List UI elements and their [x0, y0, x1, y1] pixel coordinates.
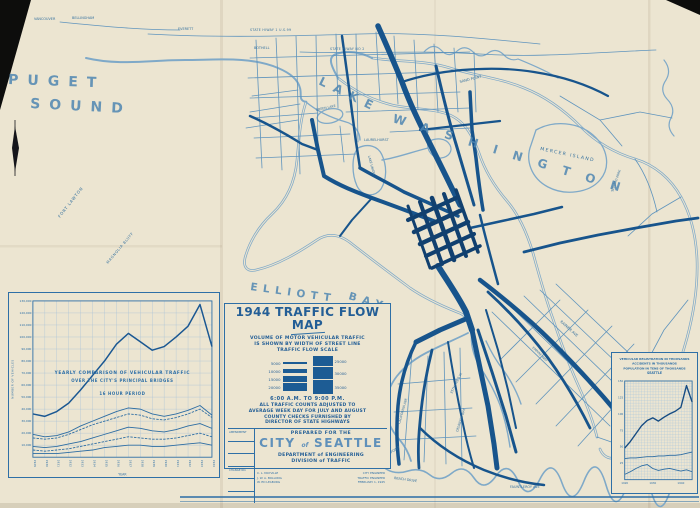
- scale-heading: TRAFFIC FLOW SCALE: [228, 348, 387, 354]
- series-line-6: [33, 443, 212, 454]
- amendment-table: AMENDMENT CHANGE NO.: [228, 429, 255, 503]
- traffic-flow-scale: 5000 10000 15000 20000 25000 30000 35000: [228, 356, 387, 394]
- label-puget: PUGET: [8, 72, 106, 91]
- scale-right-column: 25000 30000 35000: [313, 356, 353, 394]
- y-tick-label: 125: [618, 395, 623, 399]
- y-tick-label: 80,000: [21, 359, 31, 363]
- scale-bar: [283, 383, 307, 392]
- scale-bar: [283, 369, 307, 374]
- note-line-4: DIRECTOR OF STATE HIGHWAYS: [228, 420, 387, 426]
- scale-bar: [283, 376, 307, 383]
- series-registration: [625, 386, 692, 448]
- title-block-lower: AMENDMENT CHANGE NO. PREPARED FOR THE CI…: [228, 428, 387, 503]
- y-tick-label: 100: [618, 412, 623, 416]
- y-tick-label: 110,000: [20, 323, 32, 327]
- y-tick-label: 150: [618, 379, 623, 383]
- plot-border: [625, 381, 692, 480]
- y-tick-label: 70,000: [21, 371, 31, 375]
- bridge-traffic-chart-svg: 10,00020,00030,00040,00050,00060,00070,0…: [9, 293, 219, 477]
- label-fauntleroy-ave: FAUNTLEROY AVE: [510, 485, 540, 489]
- label-bellingham: BELLINGHAM: [72, 16, 94, 20]
- scale-label: 30000: [335, 371, 353, 376]
- x-tick-label: 1930: [649, 481, 656, 485]
- x-tick-label: 1940: [164, 460, 168, 467]
- label-state-hiway-1: STATE HIWAY 1 U.S.99: [250, 28, 291, 32]
- x-tick-label: 1935: [104, 460, 108, 467]
- y-tick-label: 10,000: [21, 443, 31, 447]
- of-word: of: [301, 442, 308, 449]
- x-tick-label: 1920: [621, 481, 628, 485]
- seattle-word: SEATTLE: [314, 436, 383, 450]
- y-tick-label: 100,000: [20, 335, 32, 339]
- y-tick-label: 120,000: [20, 311, 32, 315]
- x-tick-label: 1930: [45, 460, 49, 467]
- registration-chart-svg: 255075100125150192019301940VEHICULAR REG…: [612, 353, 697, 493]
- signature-names: C. L. MAYVILLE J. W. A. BOLLONG W. ED LE…: [255, 471, 321, 484]
- label-vancouver: VANCOUVER: [34, 17, 56, 21]
- prepared-for-section: PREPARED FOR THE CITY of SEATTLE DEPARTM…: [255, 429, 387, 503]
- city-word: CITY: [259, 436, 296, 450]
- scale-label: 35000: [335, 385, 353, 390]
- x-tick-label: 1941: [176, 460, 180, 467]
- chart-title-line: ACCIDENTS IN THOUSANDS: [632, 362, 677, 366]
- scale-block: [313, 367, 333, 379]
- scale-label: 15000: [263, 377, 281, 382]
- x-tick-label: 1932: [69, 460, 73, 467]
- x-tick-label: 1934: [93, 460, 97, 467]
- chart-note: 16 HOUR PERIOD: [99, 391, 145, 396]
- bridge-traffic-chart: 10,00020,00030,00040,00050,00060,00070,0…: [8, 292, 220, 478]
- label-bothell: BOTHELL: [254, 46, 270, 50]
- label-laurelhurst: LAURELHURST: [364, 138, 390, 142]
- city-of-seattle: CITY of SEATTLE: [259, 436, 383, 453]
- amendment-cell: [228, 492, 254, 504]
- division-text: DIVISION of TRAFFIC: [291, 459, 350, 465]
- map-title: 1944 TRAFFIC FLOW MAP: [228, 306, 387, 332]
- title-flourish: [291, 332, 325, 335]
- series-accidents: [625, 465, 692, 475]
- title-legend-block: 1944 TRAFFIC FLOW MAP VOLUME OF MOTOR VE…: [224, 303, 391, 469]
- amendment-cell: [228, 479, 254, 492]
- count-time-range: 6:00 A.M. TO 9:00 P.M.: [228, 396, 387, 402]
- scale-left-column: 5000 10000 15000 20000: [263, 359, 307, 391]
- y-axis-label: NUMBER OF VEHICLES: [11, 359, 15, 398]
- signature-title: FEBRUARY 1, 1945: [323, 480, 385, 484]
- y-tick-label: 130,000: [20, 299, 32, 303]
- x-tick-label: 1933: [81, 460, 85, 467]
- note-line-2: AVERAGE WEEK DAY FOR JULY AND AUGUST: [228, 409, 387, 415]
- series-line-5: [33, 433, 212, 451]
- label-state-hiway-2: STATE HIWAY NO 2: [330, 47, 365, 51]
- x-tick-label: 1938: [140, 460, 144, 467]
- amendment-cell: [228, 442, 254, 455]
- x-tick-label: 1943: [200, 460, 204, 467]
- scale-bar: [283, 362, 307, 365]
- y-tick-label: 20,000: [21, 431, 31, 435]
- amendment-header: AMENDMENT: [228, 429, 254, 442]
- series-population: [625, 452, 692, 459]
- signature-block: C. L. MAYVILLE J. W. A. BOLLONG W. ED LE…: [255, 468, 387, 484]
- label-everett: EVERETT: [178, 27, 194, 31]
- chart-title: YEARLY COMPARISON OF VEHICULAR TRAFFIC: [54, 370, 191, 376]
- y-tick-label: 60,000: [21, 383, 31, 387]
- scale-label: 20000: [263, 385, 281, 390]
- chart-subtitle: OVER THE CITY'S PRINCIPAL BRIDGES: [71, 378, 173, 383]
- x-axis-label: YEAR: [118, 473, 127, 477]
- x-tick-label: 1942: [188, 460, 192, 467]
- series-total-all-bridges: [33, 305, 212, 417]
- chart-title-line: SEATTLE: [647, 371, 662, 375]
- x-tick-label: 1940: [677, 481, 684, 485]
- chart-title-line: POPULATION IN TENS OF THOUSANDS: [623, 366, 685, 370]
- y-tick-label: 90,000: [21, 347, 31, 351]
- signature-name: W. ED LEABURG: [257, 480, 319, 484]
- registration-chart: 255075100125150192019301940VEHICULAR REG…: [611, 352, 698, 494]
- amendment-cell: [228, 454, 254, 467]
- x-tick-label: 1929: [33, 460, 37, 467]
- scale-block: [313, 380, 333, 394]
- chart-title-line: VEHICULAR REGISTRATION IN THOUSANDS: [619, 357, 689, 361]
- x-tick-label: 1931: [57, 460, 61, 467]
- scale-label: 25000: [335, 359, 353, 364]
- signature-titles: CITY ENGINEER TRAFFIC ENGINEER FEBRUARY …: [321, 471, 387, 484]
- x-tick-label: 1944: [212, 460, 216, 467]
- scanned-map-photo: PUGET SOUND LAKE WASHINGTON ELLIOTT BAY …: [0, 0, 700, 508]
- scale-label: 5000: [263, 361, 281, 366]
- scale-block: [313, 356, 333, 366]
- x-tick-label: 1937: [128, 460, 132, 467]
- scale-label: 10000: [263, 369, 281, 374]
- y-tick-label: 40,000: [21, 407, 31, 411]
- x-tick-label: 1939: [152, 460, 156, 467]
- change-no-header: CHANGE NO.: [228, 467, 254, 480]
- y-tick-label: 25: [620, 461, 624, 465]
- y-tick-label: 30,000: [21, 419, 31, 423]
- y-tick-label: 50,000: [21, 395, 31, 399]
- y-tick-label: 50: [620, 445, 624, 449]
- y-tick-label: 75: [620, 428, 624, 432]
- x-tick-label: 1936: [116, 460, 120, 467]
